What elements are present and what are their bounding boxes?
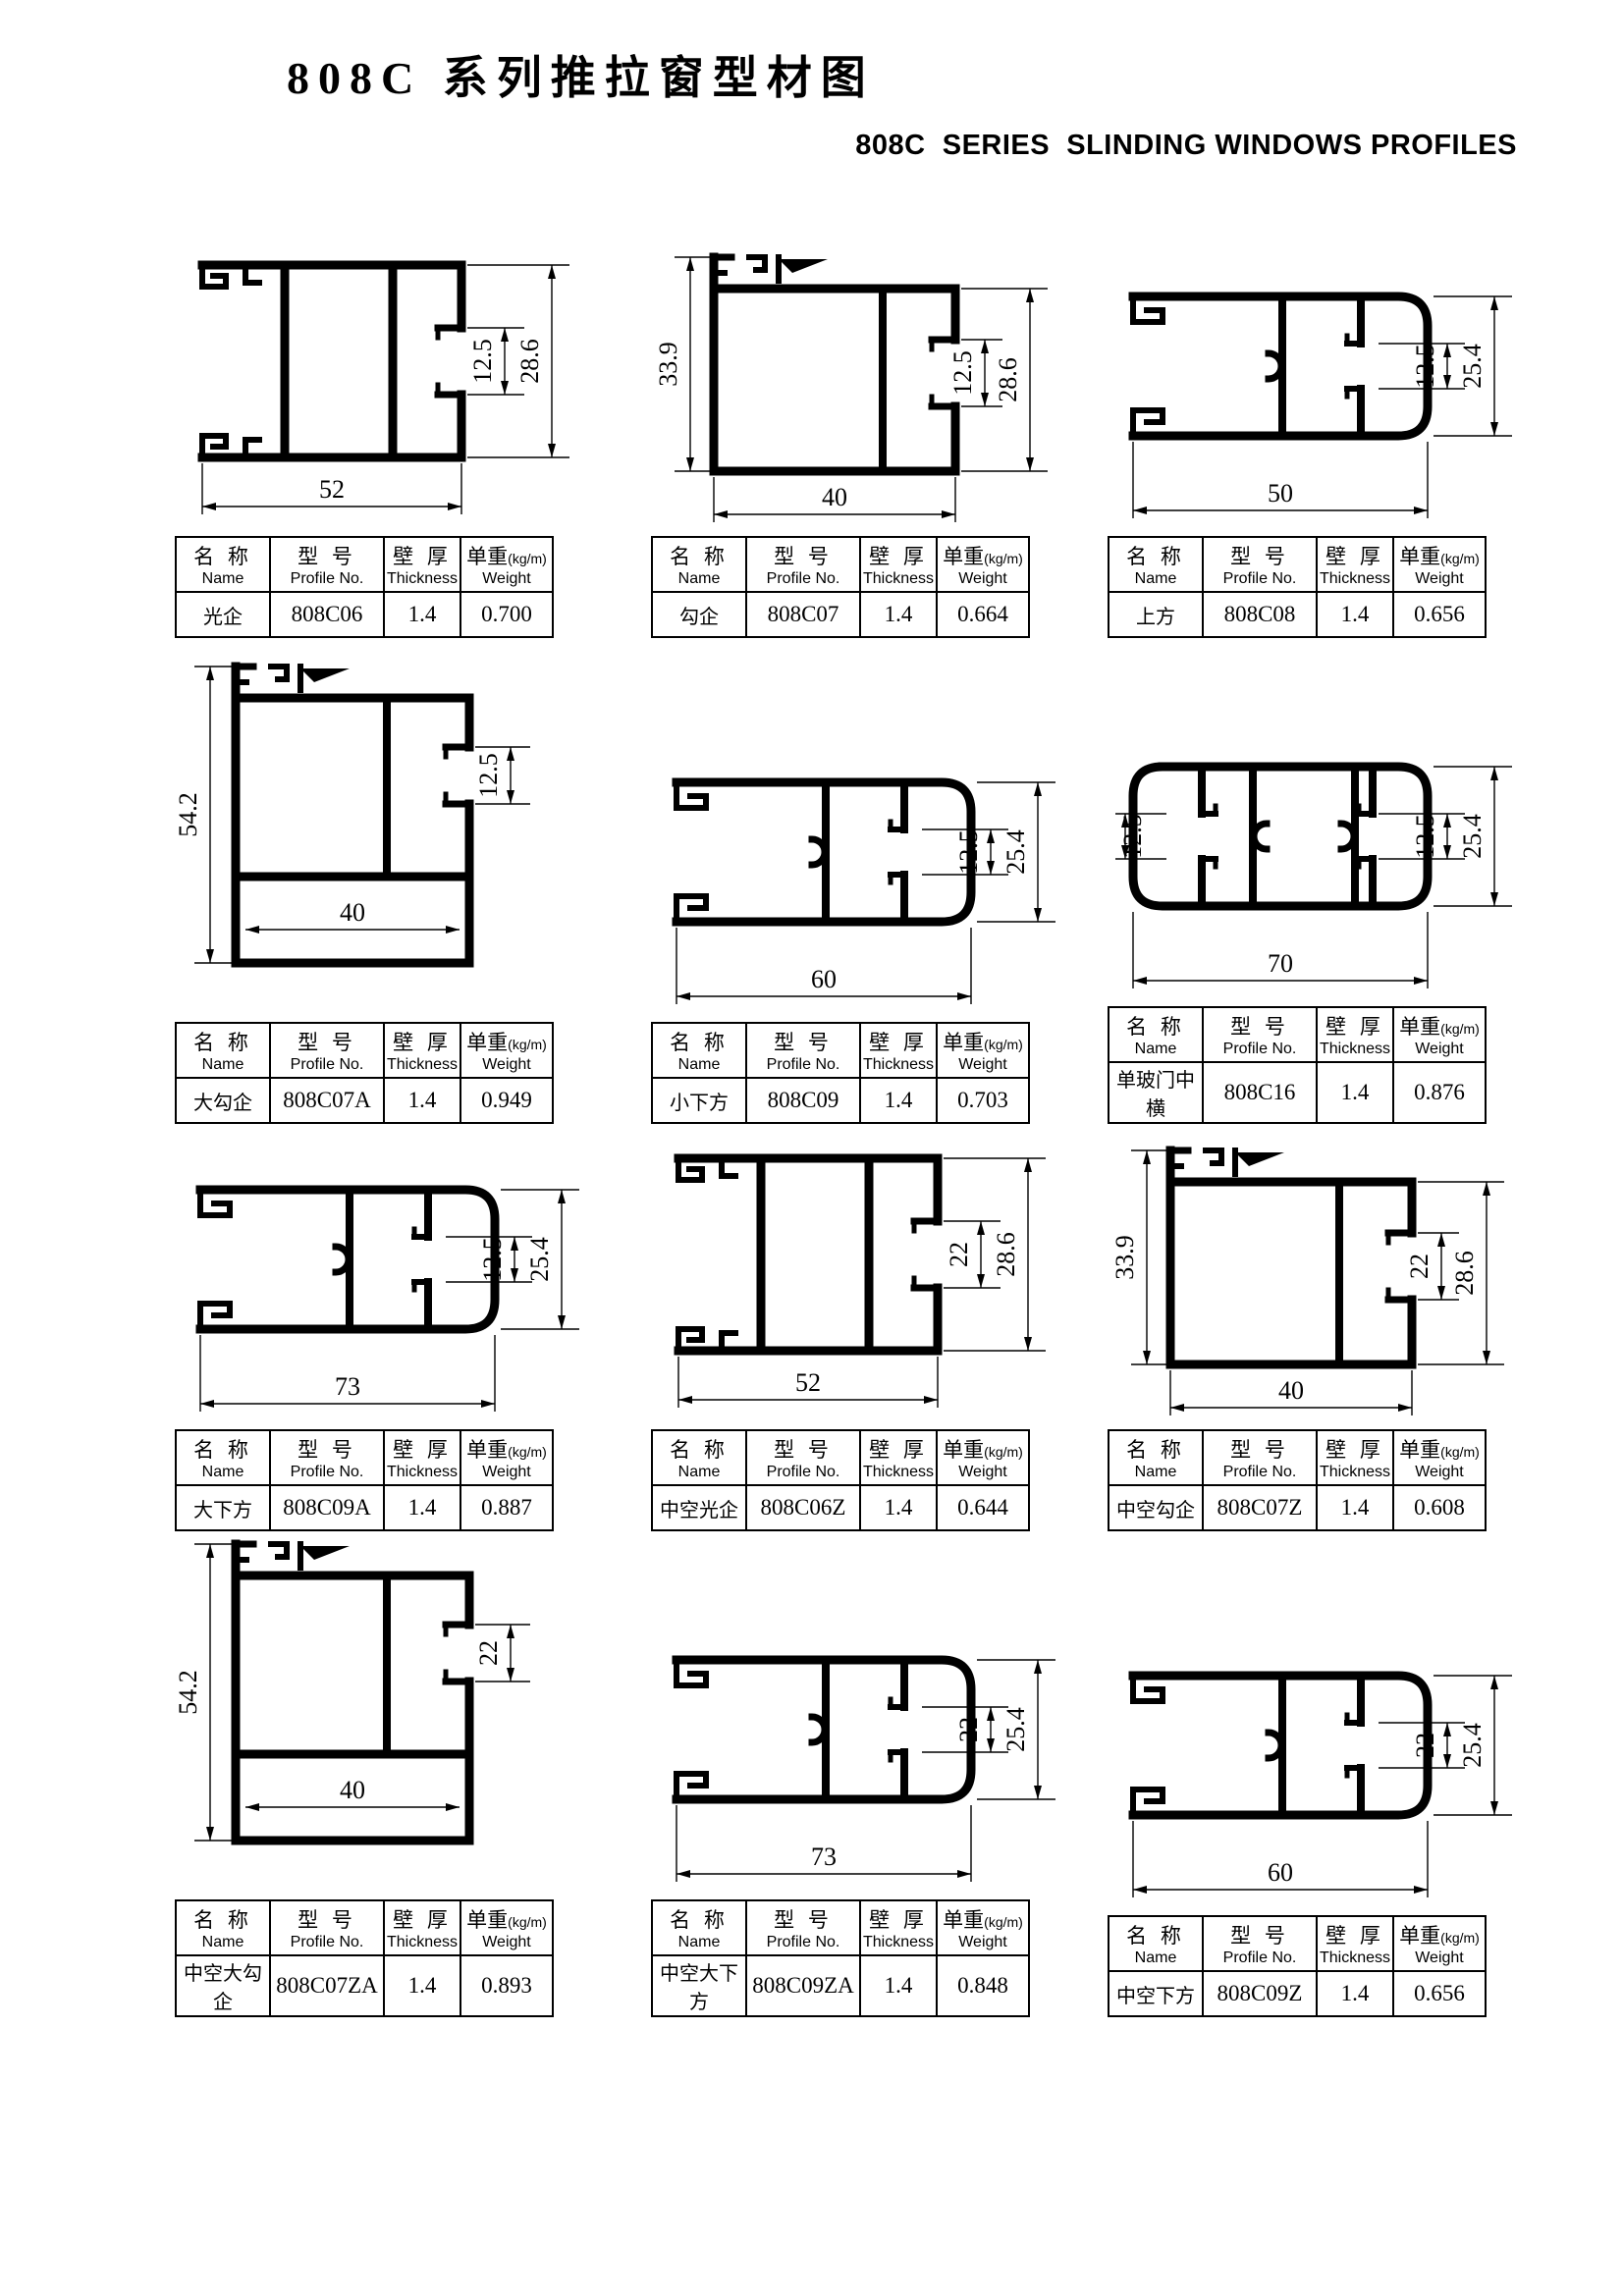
col-header-name-cn: 名 称	[1109, 1011, 1202, 1041]
spec-header-row: 名 称 Name 型 号 Profile No. 壁 厚 Thickness 单…	[652, 1430, 1029, 1485]
spec-header-row: 名 称 Name 型 号 Profile No. 壁 厚 Thickness 单…	[652, 1023, 1029, 1078]
dimension-label: 22	[945, 1242, 973, 1267]
spec-data-row: 勾企 808C07 1.4 0.664	[652, 592, 1029, 637]
dimension-label: 33.9	[654, 342, 682, 387]
profile-drawing-svg: 602225.4	[1108, 1613, 1540, 1907]
col-header-profile-no: 型 号 Profile No.	[1203, 1007, 1317, 1062]
profile-cell: 5212.528.6 名 称 Name 型 号 Profile No. 壁 厚 …	[147, 236, 623, 638]
profile-drawing-svg: 54.212.540	[175, 631, 607, 1014]
weight-unit: (kg/m)	[1440, 1930, 1480, 1946]
dimension-label: 33.9	[1110, 1235, 1139, 1280]
col-header-profile-no: 型 号 Profile No.	[746, 1023, 860, 1078]
profile-thickness: 1.4	[1317, 592, 1393, 637]
col-header-profile-cn: 型 号	[271, 1434, 383, 1464]
dimension-label: 60	[811, 965, 837, 993]
col-header-profile-cn: 型 号	[1204, 1434, 1316, 1464]
col-header-weight-cn: 单重(kg/m)	[461, 1027, 552, 1056]
spec-header-row: 名 称 Name 型 号 Profile No. 壁 厚 Thickness 单…	[176, 1430, 553, 1485]
col-header-name-cn: 名 称	[177, 1434, 269, 1464]
profile-number: 808C06Z	[746, 1485, 860, 1530]
col-header-profile-cn: 型 号	[747, 1434, 859, 1464]
col-header-weight: 单重(kg/m) Weight	[460, 537, 553, 592]
col-header-profile-en: Profile No.	[747, 570, 859, 588]
col-header-profile-cn: 型 号	[271, 1027, 383, 1056]
col-header-thickness: 壁 厚 Thickness	[384, 537, 460, 592]
col-header-name-en: Name	[1109, 1464, 1202, 1481]
weight-unit: (kg/m)	[508, 551, 547, 566]
profile-name: 中空勾企	[1109, 1485, 1203, 1530]
profile-name: 中空下方	[1109, 1971, 1203, 2016]
col-header-name: 名 称 Name	[1109, 1007, 1203, 1062]
profile-cross-section-drawing: 33.94012.528.6	[651, 224, 1083, 528]
col-header-weight: 单重(kg/m) Weight	[1393, 537, 1486, 592]
col-header-thickness-cn: 壁 厚	[385, 1434, 460, 1464]
col-header-weight: 单重(kg/m) Weight	[1393, 1430, 1486, 1485]
col-header-thickness-en: Thickness	[861, 1464, 936, 1481]
profile-cell: 602225.4 名 称 Name 型 号 Profile No. 壁 厚 Th…	[1080, 1531, 1537, 2017]
col-header-profile-en: Profile No.	[747, 1464, 859, 1481]
profile-thickness: 1.4	[1317, 1971, 1393, 2016]
profile-thickness: 1.4	[860, 592, 937, 637]
col-header-name-en: Name	[177, 570, 269, 588]
dimension-label: 40	[340, 1776, 365, 1804]
col-header-profile-no: 型 号 Profile No.	[270, 1023, 384, 1078]
profile-number: 808C09Z	[1203, 1971, 1317, 2016]
col-header-name: 名 称 Name	[652, 537, 746, 592]
profile-weight: 0.608	[1393, 1485, 1486, 1530]
col-header-weight: 单重(kg/m) Weight	[937, 1900, 1029, 1955]
col-header-thickness-en: Thickness	[1318, 570, 1392, 588]
col-header-weight-en: Weight	[1394, 1041, 1485, 1058]
col-header-name-en: Name	[653, 570, 745, 588]
catalog-page: 808C 系列推拉窗型材图 808C SERIES SLINDING WINDO…	[0, 0, 1623, 2296]
col-header-weight-en: Weight	[938, 1464, 1028, 1481]
weight-unit: (kg/m)	[984, 1037, 1023, 1052]
profile-spec-table: 名 称 Name 型 号 Profile No. 壁 厚 Thickness 单…	[651, 1899, 1030, 2017]
col-header-weight-en: Weight	[461, 1934, 552, 1951]
col-header-profile-en: Profile No.	[271, 1056, 383, 1074]
dimension-label: 22	[1405, 1254, 1434, 1279]
spec-data-row: 上方 808C08 1.4 0.656	[1109, 592, 1486, 637]
profile-weight: 0.644	[937, 1485, 1029, 1530]
col-header-weight: 单重(kg/m) Weight	[937, 1430, 1029, 1485]
spec-header-row: 名 称 Name 型 号 Profile No. 壁 厚 Thickness 单…	[652, 1900, 1029, 1955]
col-header-weight-en: Weight	[938, 570, 1028, 588]
spec-data-row: 中空勾企 808C07Z 1.4 0.608	[1109, 1485, 1486, 1530]
profile-number: 808C07A	[270, 1078, 384, 1123]
col-header-thickness-cn: 壁 厚	[861, 1904, 936, 1934]
profile-drawing-svg: 6012.525.4	[651, 720, 1083, 1014]
dimension-label: 25.4	[525, 1237, 554, 1282]
col-header-weight: 单重(kg/m) Weight	[1393, 1007, 1486, 1062]
profile-cross-section-drawing: 33.9402228.6	[1108, 1117, 1540, 1421]
col-header-thickness-en: Thickness	[1318, 1949, 1392, 1967]
col-header-name-en: Name	[177, 1934, 269, 1951]
profile-drawing-svg: 7012.525.412.5	[1108, 704, 1540, 998]
profile-number: 808C07ZA	[270, 1955, 384, 2016]
col-header-weight-cn: 单重(kg/m)	[938, 1434, 1028, 1464]
col-header-weight: 单重(kg/m) Weight	[460, 1900, 553, 1955]
spec-data-row: 大勾企 808C07A 1.4 0.949	[176, 1078, 553, 1123]
col-header-profile-en: Profile No.	[1204, 1464, 1316, 1481]
col-header-name-cn: 名 称	[653, 1027, 745, 1056]
col-header-profile-en: Profile No.	[271, 1934, 383, 1951]
profile-weight: 0.664	[937, 592, 1029, 637]
profile-thickness: 1.4	[1317, 1485, 1393, 1530]
col-header-thickness-en: Thickness	[861, 570, 936, 588]
col-header-name-cn: 名 称	[177, 541, 269, 570]
profile-cell: 54.22240 名 称 Name 型 号 Profile No. 壁 厚 Th…	[147, 1531, 623, 2017]
col-header-profile-no: 型 号 Profile No.	[1203, 537, 1317, 592]
profile-weight: 0.876	[1393, 1062, 1486, 1123]
dimension-label: 12.5	[474, 753, 503, 798]
col-header-profile-cn: 型 号	[747, 1904, 859, 1934]
profile-spec-table: 名 称 Name 型 号 Profile No. 壁 厚 Thickness 单…	[175, 1022, 554, 1124]
spec-header-row: 名 称 Name 型 号 Profile No. 壁 厚 Thickness 单…	[176, 1023, 553, 1078]
col-header-thickness-cn: 壁 厚	[385, 1027, 460, 1056]
col-header-profile-en: Profile No.	[271, 1464, 383, 1481]
dimension-label: 28.6	[515, 339, 544, 384]
profile-cell: 7312.525.4 名 称 Name 型 号 Profile No. 壁 厚 …	[147, 1124, 623, 1531]
profile-spec-table: 名 称 Name 型 号 Profile No. 壁 厚 Thickness 单…	[175, 1899, 554, 2017]
dimension-label: 28.6	[994, 357, 1022, 402]
col-header-name: 名 称 Name	[176, 1430, 270, 1485]
profile-cross-section-drawing: 7312.525.4	[175, 1127, 607, 1421]
profile-cell: 33.94012.528.6 名 称 Name 型 号 Profile No. …	[623, 236, 1080, 638]
col-header-name: 名 称 Name	[176, 1023, 270, 1078]
col-header-profile-en: Profile No.	[1204, 570, 1316, 588]
col-header-weight-cn: 单重(kg/m)	[461, 1434, 552, 1464]
col-header-thickness-en: Thickness	[385, 1056, 460, 1074]
col-header-weight-cn: 单重(kg/m)	[1394, 1011, 1485, 1041]
col-header-profile-cn: 型 号	[271, 541, 383, 570]
col-header-profile-cn: 型 号	[1204, 1920, 1316, 1949]
profiles-grid: 5212.528.6 名 称 Name 型 号 Profile No. 壁 厚 …	[147, 236, 1623, 2017]
col-header-thickness: 壁 厚 Thickness	[1317, 537, 1393, 592]
profile-name: 中空大勾企	[176, 1955, 270, 2016]
col-header-name-en: Name	[1109, 570, 1202, 588]
col-header-profile-cn: 型 号	[747, 1027, 859, 1056]
col-header-weight: 单重(kg/m) Weight	[460, 1023, 553, 1078]
spec-header-row: 名 称 Name 型 号 Profile No. 壁 厚 Thickness 单…	[1109, 537, 1486, 592]
col-header-thickness-en: Thickness	[1318, 1464, 1392, 1481]
dimension-label: 54.2	[175, 792, 202, 837]
col-header-name: 名 称 Name	[652, 1023, 746, 1078]
col-header-weight-en: Weight	[461, 570, 552, 588]
dimension-label: 73	[335, 1372, 360, 1401]
col-header-name-en: Name	[653, 1934, 745, 1951]
profile-number: 808C08	[1203, 592, 1317, 637]
profile-cross-section-drawing: 5212.528.6	[175, 224, 607, 528]
col-header-name: 名 称 Name	[652, 1900, 746, 1955]
col-header-thickness-en: Thickness	[385, 570, 460, 588]
col-header-weight-en: Weight	[938, 1056, 1028, 1074]
dimension-label: 22	[954, 1717, 983, 1742]
col-header-weight-en: Weight	[1394, 570, 1485, 588]
dimension-label: 60	[1268, 1858, 1293, 1887]
profile-number: 808C16	[1203, 1062, 1317, 1123]
col-header-profile-no: 型 号 Profile No.	[1203, 1430, 1317, 1485]
dimension-label: 12.5	[954, 829, 983, 875]
profile-number: 808C07	[746, 592, 860, 637]
profile-cell: 522228.6 名 称 Name 型 号 Profile No. 壁 厚 Th…	[623, 1124, 1080, 1531]
col-header-thickness-cn: 壁 厚	[861, 1434, 936, 1464]
col-header-name: 名 称 Name	[176, 1900, 270, 1955]
col-header-name-en: Name	[1109, 1949, 1202, 1967]
col-header-thickness: 壁 厚 Thickness	[1317, 1430, 1393, 1485]
profile-name: 勾企	[652, 592, 746, 637]
dimension-label: 52	[795, 1368, 821, 1397]
col-header-thickness-cn: 壁 厚	[1318, 1434, 1392, 1464]
col-header-profile-cn: 型 号	[271, 1904, 383, 1934]
profile-weight: 0.949	[460, 1078, 553, 1123]
col-header-profile-no: 型 号 Profile No.	[270, 1430, 384, 1485]
col-header-profile-no: 型 号 Profile No.	[746, 1900, 860, 1955]
profile-cell: 732225.4 名 称 Name 型 号 Profile No. 壁 厚 Th…	[623, 1531, 1080, 2017]
profile-drawing-svg: 732225.4	[651, 1597, 1083, 1892]
col-header-weight-cn: 单重(kg/m)	[1394, 1920, 1485, 1949]
profile-cross-section-drawing: 732225.4	[651, 1597, 1083, 1892]
col-header-weight: 单重(kg/m) Weight	[460, 1430, 553, 1485]
col-header-weight: 单重(kg/m) Weight	[937, 1023, 1029, 1078]
dimension-label: 25.4	[1458, 814, 1487, 859]
col-header-name-cn: 名 称	[1109, 1920, 1202, 1949]
profile-cell: 5012.525.4 名 称 Name 型 号 Profile No. 壁 厚 …	[1080, 236, 1537, 638]
profile-drawing-svg: 5212.528.6	[175, 224, 607, 528]
dimension-label: 12.5	[1411, 814, 1439, 859]
spec-header-row: 名 称 Name 型 号 Profile No. 壁 厚 Thickness 单…	[1109, 1916, 1486, 1971]
col-header-profile-no: 型 号 Profile No.	[746, 1430, 860, 1485]
profile-weight: 0.848	[937, 1955, 1029, 2016]
col-header-name-cn: 名 称	[1109, 1434, 1202, 1464]
col-header-thickness-en: Thickness	[385, 1464, 460, 1481]
profile-thickness: 1.4	[1317, 1062, 1393, 1123]
profile-name: 中空光企	[652, 1485, 746, 1530]
col-header-thickness: 壁 厚 Thickness	[860, 1900, 937, 1955]
dimension-label: 25.4	[1001, 1707, 1030, 1752]
weight-unit: (kg/m)	[1440, 1444, 1480, 1460]
col-header-weight: 单重(kg/m) Weight	[1393, 1916, 1486, 1971]
col-header-thickness-en: Thickness	[861, 1056, 936, 1074]
dimension-label: 25.4	[1458, 344, 1487, 389]
profile-cell: 6012.525.4 名 称 Name 型 号 Profile No. 壁 厚 …	[623, 638, 1080, 1124]
dimension-label: 25.4	[1458, 1723, 1487, 1768]
col-header-name-cn: 名 称	[177, 1027, 269, 1056]
col-header-weight-en: Weight	[938, 1934, 1028, 1951]
weight-unit: (kg/m)	[1440, 1021, 1480, 1037]
spec-data-row: 中空大下方 808C09ZA 1.4 0.848	[652, 1955, 1029, 2016]
profile-drawing-svg: 33.94012.528.6	[651, 224, 1083, 528]
profile-cross-section-drawing: 54.22240	[175, 1509, 607, 1892]
col-header-thickness: 壁 厚 Thickness	[1317, 1007, 1393, 1062]
col-header-profile-cn: 型 号	[1204, 1011, 1316, 1041]
page-title: 808C 系列推拉窗型材图	[287, 49, 1623, 108]
profile-spec-table: 名 称 Name 型 号 Profile No. 壁 厚 Thickness 单…	[651, 1022, 1030, 1124]
col-header-thickness-cn: 壁 厚	[1318, 1920, 1392, 1949]
col-header-name-en: Name	[177, 1464, 269, 1481]
profile-drawing-svg: 33.9402228.6	[1108, 1117, 1540, 1421]
dimension-label: 12.5	[1411, 344, 1439, 389]
col-header-name-cn: 名 称	[653, 541, 745, 570]
dimension-label: 12.5	[948, 350, 977, 396]
profile-thickness: 1.4	[860, 1485, 937, 1530]
col-header-thickness: 壁 厚 Thickness	[860, 1023, 937, 1078]
spec-header-row: 名 称 Name 型 号 Profile No. 壁 厚 Thickness 单…	[1109, 1007, 1486, 1062]
col-header-name: 名 称 Name	[1109, 537, 1203, 592]
profile-spec-table: 名 称 Name 型 号 Profile No. 壁 厚 Thickness 单…	[651, 536, 1030, 638]
col-header-profile-no: 型 号 Profile No.	[270, 537, 384, 592]
profile-cross-section-drawing: 54.212.540	[175, 631, 607, 1014]
weight-unit: (kg/m)	[984, 1914, 1023, 1930]
dimension-label: 70	[1268, 949, 1293, 978]
col-header-thickness: 壁 厚 Thickness	[860, 1430, 937, 1485]
weight-unit: (kg/m)	[508, 1037, 547, 1052]
spec-header-row: 名 称 Name 型 号 Profile No. 壁 厚 Thickness 单…	[176, 537, 553, 592]
col-header-profile-en: Profile No.	[1204, 1041, 1316, 1058]
profile-cell: 33.9402228.6 名 称 Name 型 号 Profile No. 壁 …	[1080, 1124, 1537, 1531]
col-header-thickness-en: Thickness	[1318, 1041, 1392, 1058]
spec-data-row: 单玻门中横 808C16 1.4 0.876	[1109, 1062, 1486, 1123]
col-header-weight-cn: 单重(kg/m)	[938, 1904, 1028, 1934]
col-header-name-cn: 名 称	[653, 1904, 745, 1934]
profile-cross-section-drawing: 522228.6	[651, 1117, 1083, 1421]
col-header-profile-cn: 型 号	[747, 541, 859, 570]
dimension-label: 40	[822, 483, 847, 511]
col-header-thickness: 壁 厚 Thickness	[384, 1900, 460, 1955]
profile-weight: 0.893	[460, 1955, 553, 2016]
col-header-thickness-cn: 壁 厚	[385, 1904, 460, 1934]
spec-data-row: 中空大勾企 808C07ZA 1.4 0.893	[176, 1955, 553, 2016]
col-header-thickness-cn: 壁 厚	[1318, 1011, 1392, 1041]
profile-drawing-svg: 54.22240	[175, 1509, 607, 1892]
dimension-label: 40	[340, 898, 365, 927]
profile-weight: 0.656	[1393, 1971, 1486, 2016]
spec-data-row: 中空光企 808C06Z 1.4 0.644	[652, 1485, 1029, 1530]
profile-spec-table: 名 称 Name 型 号 Profile No. 壁 厚 Thickness 单…	[1108, 1006, 1487, 1124]
dimension-label: 25.4	[1001, 829, 1030, 875]
weight-unit: (kg/m)	[984, 1444, 1023, 1460]
col-header-weight-cn: 单重(kg/m)	[461, 541, 552, 570]
page-subtitle: 808C SERIES SLINDING WINDOWS PROFILES	[0, 130, 1623, 162]
profile-thickness: 1.4	[860, 1955, 937, 2016]
dimension-label: 12.5	[1118, 814, 1147, 859]
weight-unit: (kg/m)	[1440, 551, 1480, 566]
profile-spec-table: 名 称 Name 型 号 Profile No. 壁 厚 Thickness 单…	[1108, 536, 1487, 638]
profile-spec-table: 名 称 Name 型 号 Profile No. 壁 厚 Thickness 单…	[1108, 1915, 1487, 2017]
weight-unit: (kg/m)	[984, 551, 1023, 566]
profile-number: 808C09ZA	[746, 1955, 860, 2016]
col-header-thickness-en: Thickness	[861, 1934, 936, 1951]
dimension-label: 22	[1411, 1733, 1439, 1758]
col-header-weight-en: Weight	[1394, 1949, 1485, 1967]
col-header-thickness-en: Thickness	[385, 1934, 460, 1951]
dimension-label: 28.6	[992, 1232, 1020, 1277]
col-header-profile-en: Profile No.	[747, 1934, 859, 1951]
col-header-thickness-cn: 壁 厚	[861, 1027, 936, 1056]
spec-header-row: 名 称 Name 型 号 Profile No. 壁 厚 Thickness 单…	[652, 537, 1029, 592]
col-header-name-en: Name	[653, 1464, 745, 1481]
dimension-label: 22	[474, 1640, 503, 1666]
profile-spec-table: 名 称 Name 型 号 Profile No. 壁 厚 Thickness 单…	[1108, 1429, 1487, 1531]
profile-number: 808C07Z	[1203, 1485, 1317, 1530]
dimension-label: 54.2	[175, 1670, 202, 1715]
profile-spec-table: 名 称 Name 型 号 Profile No. 壁 厚 Thickness 单…	[175, 536, 554, 638]
profile-thickness: 1.4	[384, 1078, 460, 1123]
weight-unit: (kg/m)	[508, 1444, 547, 1460]
col-header-weight-cn: 单重(kg/m)	[938, 1027, 1028, 1056]
col-header-profile-en: Profile No.	[1204, 1949, 1316, 1967]
dimension-label: 12.5	[468, 339, 497, 384]
dimension-label: 73	[811, 1842, 837, 1871]
col-header-thickness-cn: 壁 厚	[1318, 541, 1392, 570]
dimension-label: 28.6	[1450, 1251, 1479, 1296]
profile-cross-section-drawing: 7012.525.412.5	[1108, 704, 1540, 998]
profile-cross-section-drawing: 6012.525.4	[651, 720, 1083, 1014]
dimension-label: 52	[319, 475, 345, 504]
col-header-name: 名 称 Name	[652, 1430, 746, 1485]
col-header-profile-en: Profile No.	[747, 1056, 859, 1074]
col-header-name-cn: 名 称	[1109, 541, 1202, 570]
col-header-name-cn: 名 称	[653, 1434, 745, 1464]
col-header-weight-en: Weight	[461, 1056, 552, 1074]
col-header-name-en: Name	[653, 1056, 745, 1074]
col-header-thickness: 壁 厚 Thickness	[384, 1430, 460, 1485]
col-header-profile-no: 型 号 Profile No.	[1203, 1916, 1317, 1971]
col-header-profile-en: Profile No.	[271, 570, 383, 588]
spec-header-row: 名 称 Name 型 号 Profile No. 壁 厚 Thickness 单…	[1109, 1430, 1486, 1485]
col-header-thickness-cn: 壁 厚	[385, 541, 460, 570]
col-header-weight-cn: 单重(kg/m)	[1394, 1434, 1485, 1464]
profile-spec-table: 名 称 Name 型 号 Profile No. 壁 厚 Thickness 单…	[651, 1429, 1030, 1531]
col-header-weight-en: Weight	[1394, 1464, 1485, 1481]
col-header-thickness: 壁 厚 Thickness	[860, 537, 937, 592]
col-header-profile-no: 型 号 Profile No.	[746, 537, 860, 592]
col-header-thickness-cn: 壁 厚	[861, 541, 936, 570]
col-header-name-en: Name	[1109, 1041, 1202, 1058]
profile-name: 单玻门中横	[1109, 1062, 1203, 1123]
col-header-weight: 单重(kg/m) Weight	[937, 537, 1029, 592]
col-header-weight-cn: 单重(kg/m)	[938, 541, 1028, 570]
dimension-label: 12.5	[478, 1237, 507, 1282]
col-header-name: 名 称 Name	[176, 537, 270, 592]
profile-name: 大勾企	[176, 1078, 270, 1123]
profile-cross-section-drawing: 5012.525.4	[1108, 234, 1540, 528]
profile-drawing-svg: 7312.525.4	[175, 1127, 607, 1421]
spec-data-row: 中空下方 808C09Z 1.4 0.656	[1109, 1971, 1486, 2016]
spec-header-row: 名 称 Name 型 号 Profile No. 壁 厚 Thickness 单…	[176, 1900, 553, 1955]
col-header-weight-cn: 单重(kg/m)	[1394, 541, 1485, 570]
profile-cell: 7012.525.412.5 名 称 Name 型 号 Profile No. …	[1080, 638, 1537, 1124]
profile-cell: 54.212.540 名 称 Name 型 号 Profile No. 壁 厚 …	[147, 638, 623, 1124]
profile-drawing-svg: 5012.525.4	[1108, 234, 1540, 528]
col-header-profile-no: 型 号 Profile No.	[270, 1900, 384, 1955]
profile-weight: 0.656	[1393, 592, 1486, 637]
col-header-weight-en: Weight	[461, 1464, 552, 1481]
dimension-label: 50	[1268, 479, 1293, 507]
col-header-name: 名 称 Name	[1109, 1430, 1203, 1485]
dimension-label: 40	[1278, 1376, 1304, 1405]
col-header-name: 名 称 Name	[1109, 1916, 1203, 1971]
profile-name: 中空大下方	[652, 1955, 746, 2016]
profile-thickness: 1.4	[384, 1955, 460, 2016]
profile-drawing-svg: 522228.6	[651, 1117, 1083, 1421]
profile-name: 上方	[1109, 592, 1203, 637]
col-header-profile-cn: 型 号	[1204, 541, 1316, 570]
col-header-thickness: 壁 厚 Thickness	[384, 1023, 460, 1078]
col-header-name-en: Name	[177, 1056, 269, 1074]
col-header-weight-cn: 单重(kg/m)	[461, 1904, 552, 1934]
profile-cross-section-drawing: 602225.4	[1108, 1613, 1540, 1907]
